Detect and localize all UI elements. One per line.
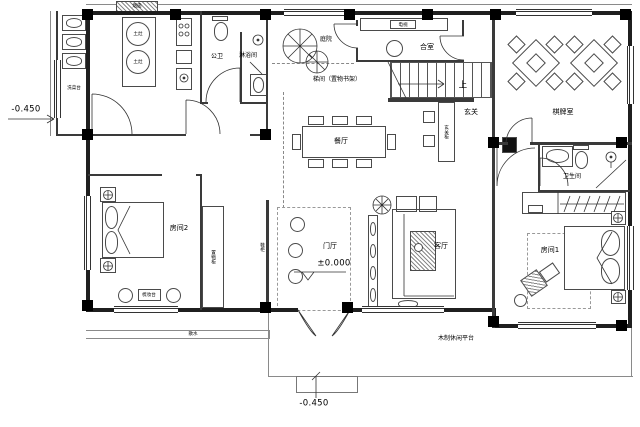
- bedroom1-label: 房间1: [541, 247, 559, 255]
- foyer-label: 门厅: [323, 243, 337, 251]
- window: [516, 9, 592, 16]
- public-wc-label: 公卫: [211, 54, 223, 61]
- stair-up-label: 上: [459, 81, 468, 90]
- window: [362, 306, 444, 313]
- wash-counter-label: 洗菜台: [67, 85, 81, 90]
- flue-label: 烟囱: [132, 3, 141, 8]
- courtyard-label: 庭院: [320, 37, 332, 44]
- bathroom-label: 卫生间: [563, 174, 581, 181]
- sofa-lines: [404, 214, 454, 296]
- level-mark-left: [8, 115, 54, 123]
- level-mark-foyer: [294, 272, 346, 280]
- column: [616, 137, 627, 148]
- window: [114, 306, 178, 313]
- entry-hall-label: 玄关: [464, 109, 478, 117]
- window: [284, 9, 344, 16]
- apron-label: 散水: [188, 331, 197, 336]
- level-mark-bottom: [312, 372, 320, 398]
- burner-dots: [179, 24, 189, 82]
- foyer-level-label: ±0.000: [317, 259, 350, 268]
- tatami-room-label: 合室: [420, 44, 434, 52]
- door-arc: [92, 24, 568, 336]
- label-leader: [250, 62, 262, 74]
- column: [490, 9, 501, 20]
- platform-label: 木制休闲平台: [438, 336, 474, 343]
- floor-plan: 烟囱 土灶 土灶 洗菜台 公卫 淋浴间 庭院 电视 合室 梯间（置物书架） 上 …: [0, 0, 640, 427]
- column: [170, 9, 181, 20]
- column: [342, 302, 353, 313]
- window: [84, 196, 91, 270]
- column: [616, 320, 627, 331]
- dining-room-label: 餐厅: [334, 138, 348, 146]
- column: [488, 316, 499, 327]
- stove-label: 土灶: [133, 31, 142, 36]
- column: [422, 9, 433, 20]
- window: [518, 322, 596, 329]
- stair-lines: [388, 62, 444, 98]
- window: [627, 46, 634, 104]
- dresser-label: 梳妆台: [142, 292, 156, 297]
- column: [620, 9, 631, 20]
- column: [260, 9, 271, 20]
- site-level-bottom-label: -0.450: [299, 399, 328, 408]
- stove-label: 土灶: [133, 59, 142, 64]
- column: [82, 300, 93, 311]
- bedroom2-label: 房间2: [170, 225, 188, 233]
- window: [627, 226, 634, 290]
- stair-room-label: 梯间（置物书架）: [313, 77, 361, 84]
- storage-cabinet-label: 置物柜: [210, 250, 215, 264]
- column: [260, 129, 271, 140]
- wardrobe-hangers: [558, 192, 624, 214]
- entry-cabinet-label: 玄关柜: [443, 125, 448, 139]
- column: [82, 129, 93, 140]
- column: [488, 137, 499, 148]
- plant-icon: [373, 196, 391, 214]
- chess-room-label: 棋牌室: [553, 109, 574, 117]
- site-level-left-label: -0.450: [11, 105, 40, 114]
- column: [344, 9, 355, 20]
- living-room-label: 客厅: [434, 243, 448, 251]
- tv-label: 电视: [398, 22, 407, 27]
- column: [260, 302, 271, 313]
- window: [54, 60, 61, 118]
- plan-linework: [0, 0, 640, 427]
- shoe-cabinet-label: 鞋柜: [259, 242, 264, 251]
- shower-room-label: 淋浴间: [239, 53, 257, 60]
- shower-head-icon: [253, 35, 616, 168]
- column: [82, 9, 93, 20]
- bed-fold: [118, 206, 612, 284]
